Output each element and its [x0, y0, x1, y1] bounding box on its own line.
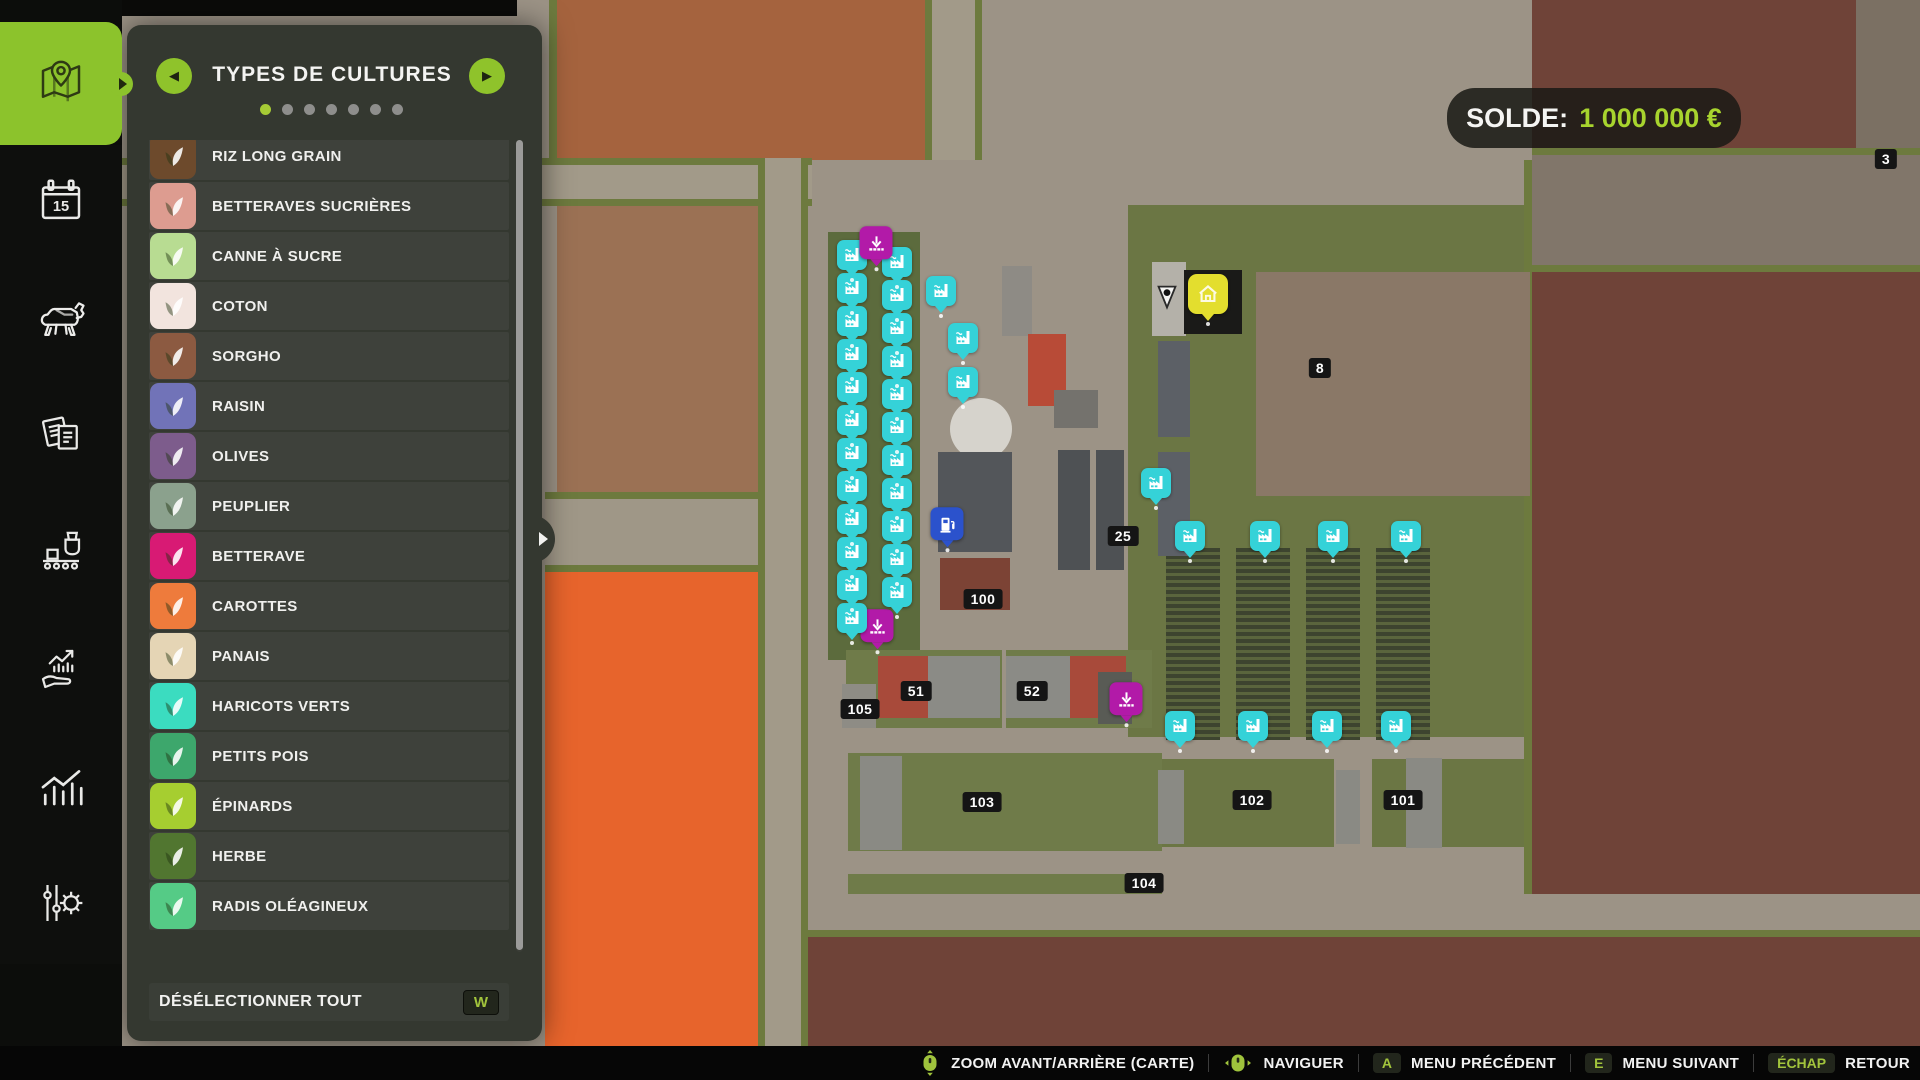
crop-types-panel: ◀ TYPES DE CULTURES ▶ RIZ LONG GRAIN BET… — [127, 25, 542, 1041]
active-tab-arrow-icon — [109, 72, 133, 96]
grass-yard-103b — [848, 874, 1162, 894]
field-dirt-8 — [1256, 272, 1530, 496]
deselect-all-label: DÉSÉLECTIONNER TOUT — [159, 993, 463, 1011]
production-marker[interactable] — [1318, 521, 1348, 551]
shed-103 — [860, 756, 902, 850]
sugar-beet-icon — [150, 183, 196, 229]
crop-type-row[interactable]: PANAIS — [149, 632, 509, 680]
field-number-badge: 105 — [841, 699, 880, 719]
field-number-badge: 101 — [1384, 790, 1423, 810]
calendar-icon: 15 — [34, 174, 88, 233]
sidebar-tab-statistics[interactable] — [0, 730, 122, 847]
field-number-badge: 25 — [1108, 526, 1139, 546]
poplar-icon — [150, 483, 196, 529]
pager-dot — [392, 104, 403, 115]
sorghum-icon — [150, 333, 196, 379]
crop-label: PANAIS — [212, 648, 270, 665]
crop-label: HARICOTS VERTS — [212, 698, 350, 715]
crop-type-row[interactable]: BETTERAVES SUCRIÈRES — [149, 182, 509, 230]
parsnip-icon — [150, 633, 196, 679]
deselect-all-button[interactable]: DÉSÉLECTIONNER TOUT W — [149, 983, 509, 1021]
mouse-zoom-icon — [919, 1048, 941, 1078]
pager-dot — [348, 104, 359, 115]
crop-label: BETTERAVE — [212, 548, 305, 565]
olive-divider-south — [808, 930, 1920, 937]
next-page-button[interactable]: ▶ — [469, 58, 505, 94]
pager-dot — [282, 104, 293, 115]
container-row-1 — [1058, 450, 1090, 570]
crop-label: BETTERAVES SUCRIÈRES — [212, 198, 411, 215]
crop-type-row[interactable]: OLIVES — [149, 432, 509, 480]
hint-label: MENU PRÉCÉDENT — [1411, 1055, 1556, 1072]
hint-separator — [1753, 1054, 1754, 1072]
field-number-badge: 100 — [964, 589, 1003, 609]
pager-dot — [260, 104, 271, 115]
key-badge: ÉCHAP — [1768, 1053, 1835, 1073]
calendar-day-number: 15 — [53, 199, 69, 215]
map-pin-icon — [34, 54, 88, 113]
production-marker[interactable] — [948, 367, 978, 397]
road-band-northeast — [1532, 148, 1920, 272]
control-hint[interactable]: ZOOM AVANT/ARRIÈRE (CARTE) — [919, 1048, 1194, 1078]
shed-102a — [1158, 770, 1184, 844]
road-grass-gap-2 — [1128, 847, 1524, 894]
crop-type-list: RIZ LONG GRAIN BETTERAVES SUCRIÈRES CANN… — [149, 140, 509, 934]
unload-marker[interactable] — [1110, 682, 1143, 715]
hint-separator — [1208, 1054, 1209, 1072]
sugarcane-icon — [150, 233, 196, 279]
field-orange — [545, 572, 760, 1046]
peas-icon — [150, 733, 196, 779]
control-hint[interactable]: EMENU SUIVANT — [1585, 1053, 1739, 1073]
production-marker[interactable] — [1238, 711, 1268, 741]
field-number-badge: 3 — [1875, 149, 1897, 169]
key-hint-w: W — [463, 990, 499, 1015]
grape-icon — [150, 383, 196, 429]
crop-label: HERBE — [212, 848, 267, 865]
sidebar-tab-settings[interactable] — [0, 847, 122, 964]
crop-label: RAISIN — [212, 398, 265, 415]
pager-dot — [304, 104, 315, 115]
key-badge: A — [1373, 1053, 1401, 1073]
spinach-icon — [150, 783, 196, 829]
unload-marker[interactable] — [860, 226, 893, 259]
panel-scrollbar[interactable] — [516, 140, 523, 952]
crop-label: ÉPINARDS — [212, 798, 293, 815]
key-badge: E — [1585, 1053, 1612, 1073]
rice-icon — [150, 140, 196, 179]
finances-icon — [34, 642, 88, 701]
sidebar: 15 — [0, 0, 122, 1080]
production-marker[interactable] — [1175, 521, 1205, 551]
shed-102b — [1336, 770, 1360, 844]
carrot-icon — [150, 583, 196, 629]
mouse-nav-icon — [1223, 1051, 1253, 1075]
field-number-badge: 104 — [1125, 873, 1164, 893]
building-annex — [1054, 390, 1098, 428]
control-hint[interactable]: NAVIGUER — [1223, 1051, 1343, 1075]
crop-label: SORGHO — [212, 348, 281, 365]
production-marker[interactable] — [1381, 711, 1411, 741]
balance-badge: SOLDE: 1 000 000 € — [1447, 88, 1741, 148]
control-hint[interactable]: ÉCHAPRETOUR — [1768, 1053, 1910, 1073]
production-marker[interactable] — [1391, 521, 1421, 551]
field-brown-west — [557, 206, 758, 492]
sidebar-tab-calendar[interactable]: 15 — [0, 145, 122, 262]
crop-label: RIZ LONG GRAIN — [212, 148, 342, 165]
crop-label: OLIVES — [212, 448, 269, 465]
olive-divider-west — [549, 0, 557, 160]
crop-type-row[interactable]: BETTERAVE — [149, 532, 509, 580]
crop-type-row[interactable]: COTON — [149, 282, 509, 330]
sidebar-tab-contracts[interactable] — [0, 379, 122, 496]
production-marker[interactable] — [948, 323, 978, 353]
road-vertical-north — [925, 0, 982, 160]
balance-value: 1 000 000 € — [1579, 103, 1722, 134]
bar-chart-icon — [34, 759, 88, 818]
crop-label: CANNE À SUCRE — [212, 248, 342, 265]
field-number-badge: 51 — [901, 681, 932, 701]
field-number-badge: 8 — [1309, 358, 1331, 378]
sidebar-tab-production[interactable] — [0, 496, 122, 613]
documents-icon — [34, 408, 88, 467]
player-marker — [1154, 282, 1180, 312]
home-marker[interactable] — [1188, 274, 1228, 314]
production-marker[interactable] — [1165, 711, 1195, 741]
production-marker[interactable] — [1312, 711, 1342, 741]
balance-label: SOLDE: — [1466, 103, 1568, 134]
crop-type-row[interactable]: RIZ LONG GRAIN — [149, 140, 509, 180]
production-marker[interactable] — [926, 276, 956, 306]
crop-label: PETITS POIS — [212, 748, 309, 765]
cotton-icon — [150, 283, 196, 329]
panel-title: TYPES DE CULTURES — [187, 63, 477, 87]
fuel-marker[interactable] — [931, 507, 964, 540]
page-indicator-dots — [181, 104, 481, 115]
production-line-icon — [34, 525, 88, 584]
field-number-badge: 52 — [1017, 681, 1048, 701]
top-black-strip — [117, 0, 517, 16]
crop-type-row[interactable]: HERBE — [149, 832, 509, 880]
field-maroon-east — [1532, 272, 1920, 894]
cow-icon — [34, 291, 88, 350]
field-number-badge: 103 — [963, 792, 1002, 812]
crop-type-row[interactable]: RAISIN — [149, 382, 509, 430]
grass-icon — [150, 833, 196, 879]
crop-label: RADIS OLÉAGINEUX — [212, 898, 368, 915]
hint-label: NAVIGUER — [1263, 1055, 1343, 1072]
container-row-2 — [1096, 450, 1124, 570]
crop-type-row[interactable]: PEUPLIER — [149, 482, 509, 530]
solar-panel-1 — [1158, 341, 1190, 437]
green-beans-icon — [150, 683, 196, 729]
sliders-gear-icon — [34, 876, 88, 935]
sidebar-tab-animals[interactable] — [0, 262, 122, 379]
road-horizontal-mid — [545, 492, 760, 572]
sidebar-tab-map[interactable] — [0, 22, 122, 145]
barn-51-gray — [928, 656, 1000, 718]
crop-label: COTON — [212, 298, 268, 315]
field-brown-north — [557, 0, 927, 160]
hint-label: ZOOM AVANT/ARRIÈRE (CARTE) — [951, 1055, 1194, 1072]
crop-type-row[interactable]: SORGHO — [149, 332, 509, 380]
pager-dot — [370, 104, 381, 115]
scrollbar-thumb[interactable] — [516, 140, 523, 950]
beetroot-icon — [150, 533, 196, 579]
crop-type-row[interactable]: RADIS OLÉAGINEUX — [149, 882, 509, 930]
control-hint[interactable]: AMENU PRÉCÉDENT — [1373, 1053, 1556, 1073]
crop-type-row[interactable]: CAROTTES — [149, 582, 509, 630]
building-gray-north — [1002, 266, 1032, 336]
road-vertical-main — [758, 158, 808, 1080]
crop-label: CAROTTES — [212, 598, 298, 615]
hint-label: MENU SUIVANT — [1622, 1055, 1739, 1072]
hint-separator — [1358, 1054, 1359, 1072]
production-marker[interactable] — [1250, 521, 1280, 551]
olive-icon — [150, 433, 196, 479]
pager-dot — [326, 104, 337, 115]
oilseed-radish-icon — [150, 883, 196, 929]
crop-type-row[interactable]: PETITS POIS — [149, 732, 509, 780]
sidebar-tab-finances[interactable] — [0, 613, 122, 730]
crop-type-row[interactable]: CANNE À SUCRE — [149, 232, 509, 280]
field-number-badge: 102 — [1233, 790, 1272, 810]
crop-type-row[interactable]: HARICOTS VERTS — [149, 682, 509, 730]
crop-type-row[interactable]: ÉPINARDS — [149, 782, 509, 830]
hint-separator — [1570, 1054, 1571, 1072]
olive-divider-east — [1524, 160, 1532, 894]
controls-hint-bar: ZOOM AVANT/ARRIÈRE (CARTE)NAVIGUERAMENU … — [0, 1046, 1920, 1080]
production-marker[interactable] — [1141, 468, 1171, 498]
hint-label: RETOUR — [1845, 1055, 1910, 1072]
game-screen: 38251005152105103102101104 SOLDE: 1 000 … — [0, 0, 1920, 1080]
crop-label: PEUPLIER — [212, 498, 290, 515]
